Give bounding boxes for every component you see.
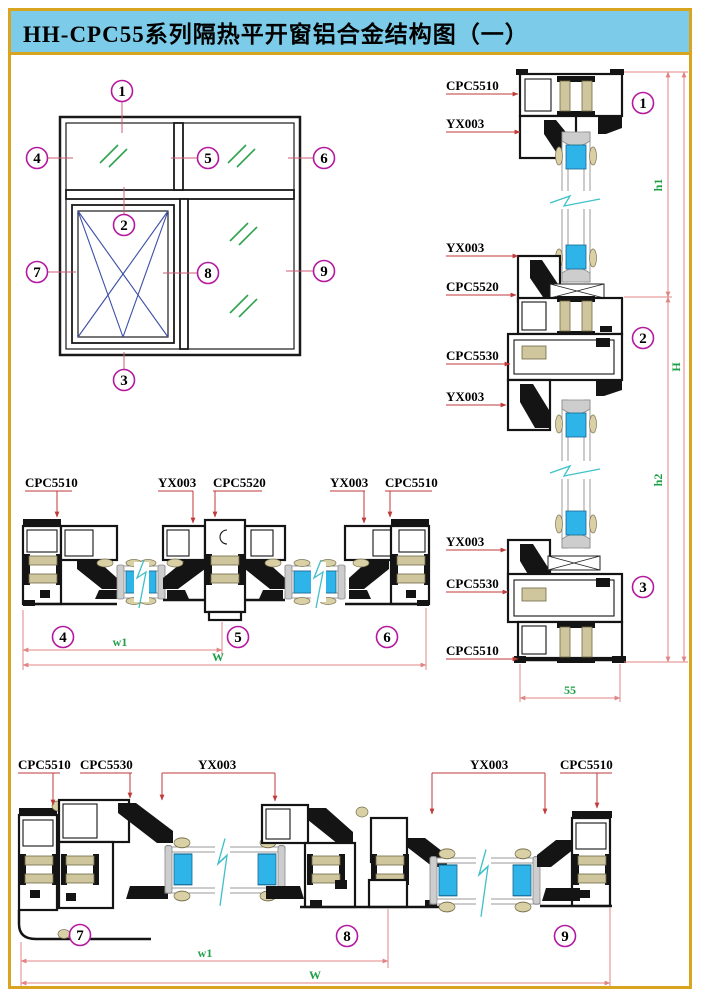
profile-label: CPC5510 bbox=[446, 643, 499, 658]
dim-w1: w1 bbox=[113, 635, 128, 649]
dim-w1: w1 bbox=[198, 946, 213, 960]
dim-W: W bbox=[309, 968, 321, 982]
callout-3: 3 bbox=[120, 373, 128, 389]
left-frame-sash-profile bbox=[19, 800, 173, 939]
profile-label: CPC5510 bbox=[446, 78, 499, 93]
right-jamb-profile bbox=[345, 519, 430, 606]
profile-label: YX003 bbox=[198, 757, 237, 772]
break-symbol bbox=[476, 850, 491, 917]
profile-label: YX003 bbox=[330, 475, 369, 490]
callout-7: 7 bbox=[33, 265, 41, 281]
glass-unit-horizontal-2 bbox=[285, 560, 345, 609]
elevation-diagram: 1 2 3 4 5 6 7 8 9 bbox=[27, 81, 335, 391]
profile-label: YX003 bbox=[158, 475, 197, 490]
profile-label: CPC5510 bbox=[560, 757, 613, 772]
center-mullion-profile bbox=[163, 520, 285, 620]
callout-2: 2 bbox=[120, 218, 128, 234]
profile-label: YX003 bbox=[446, 240, 485, 255]
profile-label: CPC5530 bbox=[446, 348, 499, 363]
glass-unit-vertical-2 bbox=[550, 400, 600, 548]
callout-9: 9 bbox=[320, 264, 328, 280]
profile-label: CPC5510 bbox=[25, 475, 78, 490]
break-symbol bbox=[550, 191, 600, 209]
middle-section-labels: CPC5510 YX003 CPC5520 YX003 CPC5510 bbox=[25, 475, 438, 523]
section-callout-6: 6 bbox=[383, 630, 391, 646]
vertical-mullion-top bbox=[174, 123, 183, 190]
profile-label: CPC5530 bbox=[446, 576, 499, 591]
middle-section-callouts: 4 5 6 bbox=[53, 627, 398, 648]
profile-label: CPC5520 bbox=[446, 279, 499, 294]
bottom-section: CPC5510 CPC5530 YX003 YX003 CPC5510 w1 bbox=[18, 757, 613, 986]
profile-label: YX003 bbox=[446, 116, 485, 131]
vertical-mullion-bottom bbox=[180, 199, 188, 349]
break-symbol bbox=[311, 560, 326, 608]
sill-frame-profile bbox=[508, 540, 626, 663]
profile-label: CPC5510 bbox=[18, 757, 71, 772]
section-callout-4: 4 bbox=[59, 630, 67, 646]
horizontal-mullion bbox=[66, 190, 294, 199]
glass-unit-horizontal-4 bbox=[430, 849, 540, 917]
profile-label: YX003 bbox=[446, 534, 485, 549]
section-callout-2: 2 bbox=[639, 331, 647, 347]
section-callout-9: 9 bbox=[561, 929, 569, 945]
break-symbol bbox=[550, 461, 600, 479]
vertical-section-callouts: 1 2 3 bbox=[633, 93, 654, 598]
dim-55: 55 bbox=[564, 683, 576, 697]
callout-6: 6 bbox=[320, 151, 328, 167]
profile-label: YX003 bbox=[446, 389, 485, 404]
center-sash-frame-profile bbox=[262, 805, 447, 907]
bottom-section-callouts: 7 8 9 bbox=[70, 925, 576, 947]
bottom-section-dimensions: w1 W bbox=[21, 908, 610, 986]
callout-8: 8 bbox=[204, 266, 212, 282]
break-symbol bbox=[134, 560, 149, 608]
drawing-sheet: HH-CPC55系列隔热平开窗铝合金结构图（一） bbox=[0, 0, 706, 1000]
section-callout-1: 1 bbox=[639, 96, 647, 112]
section-callout-5: 5 bbox=[234, 630, 242, 646]
section-callout-3: 3 bbox=[639, 580, 647, 596]
section-callout-8: 8 bbox=[343, 929, 351, 945]
vertical-section: CPC5510 YX003 YX003 CPC5520 CPC5530 YX00… bbox=[446, 69, 688, 702]
profile-label: CPC5520 bbox=[213, 475, 266, 490]
callout-4: 4 bbox=[33, 151, 41, 167]
dim-W: W bbox=[212, 650, 224, 664]
profile-label: CPC5530 bbox=[80, 757, 133, 772]
section-callout-7: 7 bbox=[76, 928, 84, 944]
glass-unit-horizontal-1 bbox=[117, 560, 165, 609]
break-symbol bbox=[215, 839, 230, 906]
profile-label: CPC5510 bbox=[385, 475, 438, 490]
callout-1: 1 bbox=[118, 84, 126, 100]
dim-H: H bbox=[669, 362, 683, 372]
profile-label: YX003 bbox=[470, 757, 509, 772]
right-frame-profile bbox=[537, 811, 612, 906]
dim-h1: h1 bbox=[651, 179, 665, 192]
middle-section: CPC5510 YX003 CPC5520 YX003 CPC5510 w1 W bbox=[23, 475, 438, 670]
drawing-canvas: 1 2 3 4 5 6 7 8 9 bbox=[0, 0, 706, 1000]
dim-h2: h2 bbox=[651, 474, 665, 487]
left-jamb-profile bbox=[23, 519, 117, 606]
callout-5: 5 bbox=[204, 151, 212, 167]
